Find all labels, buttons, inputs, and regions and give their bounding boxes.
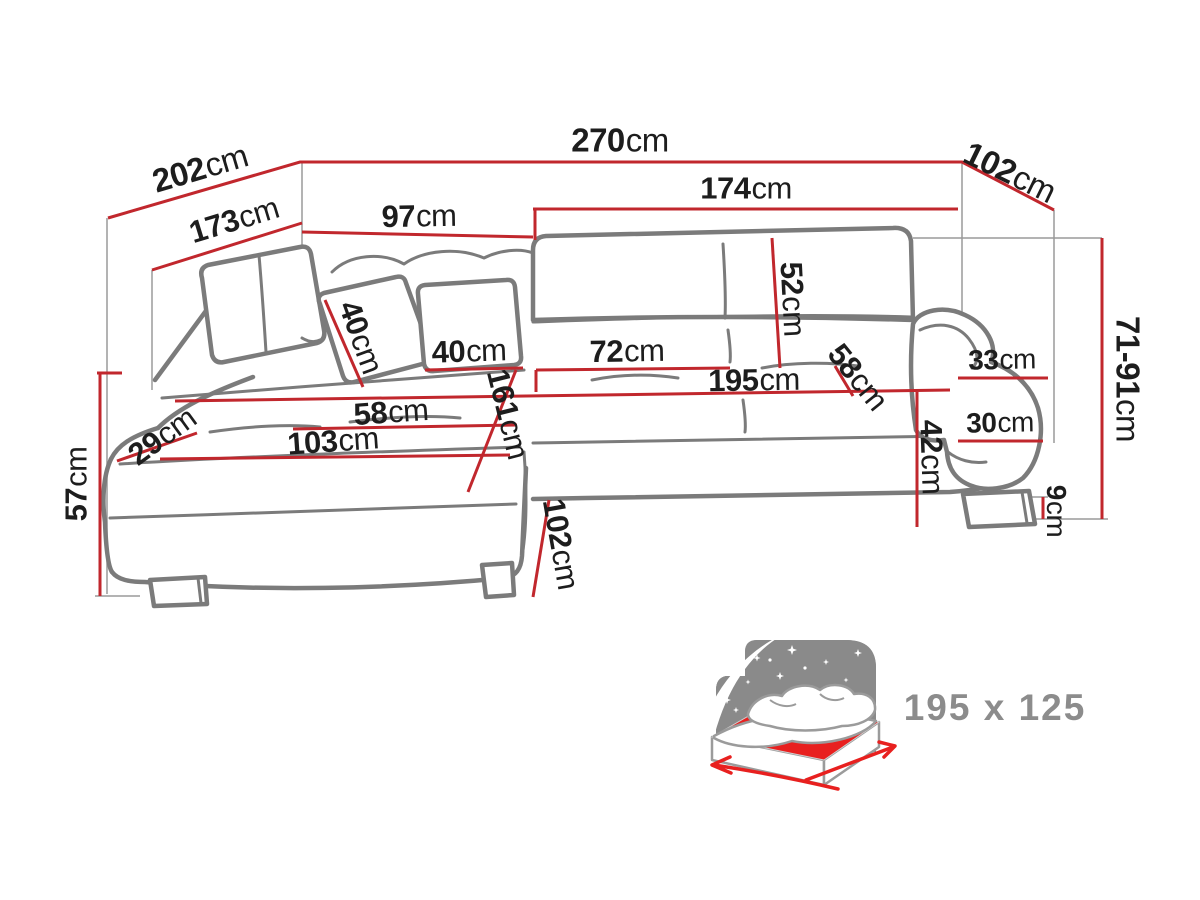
sofa-backrest bbox=[533, 228, 913, 320]
sleeping-area-size-label: 195 x 125 bbox=[904, 687, 1087, 729]
sleeping-area-bed-icon bbox=[688, 630, 895, 789]
dim-label-270cm: 270cm bbox=[571, 124, 669, 157]
sofa-leg bbox=[482, 563, 514, 597]
dim-label-33cm: 33cm bbox=[968, 345, 1036, 374]
dim-label-40cm-right: 40cm bbox=[431, 334, 507, 368]
dim-label-9cm: 9cm bbox=[1042, 485, 1070, 537]
dim-line-195 bbox=[175, 390, 950, 401]
dim-label-57cm: 57cm bbox=[61, 447, 92, 522]
dim-label-103cm: 103cm bbox=[286, 422, 380, 459]
diagram-canvas: 202cm 270cm 102cm 173cm 97cm 174cm 52cm … bbox=[0, 0, 1200, 900]
dim-label-42cm: 42cm bbox=[915, 419, 949, 495]
dim-line-72 bbox=[536, 368, 730, 392]
dim-label-195cm: 195cm bbox=[708, 364, 800, 397]
dim-label-71-91cm: 71-91cm bbox=[1112, 316, 1145, 442]
dim-label-97cm: 97cm bbox=[381, 200, 456, 232]
dim-label-52cm: 52cm bbox=[776, 261, 811, 337]
dim-label-30cm: 30cm bbox=[966, 408, 1034, 437]
dim-label-72cm: 72cm bbox=[589, 335, 664, 367]
dim-label-174cm: 174cm bbox=[700, 173, 792, 204]
